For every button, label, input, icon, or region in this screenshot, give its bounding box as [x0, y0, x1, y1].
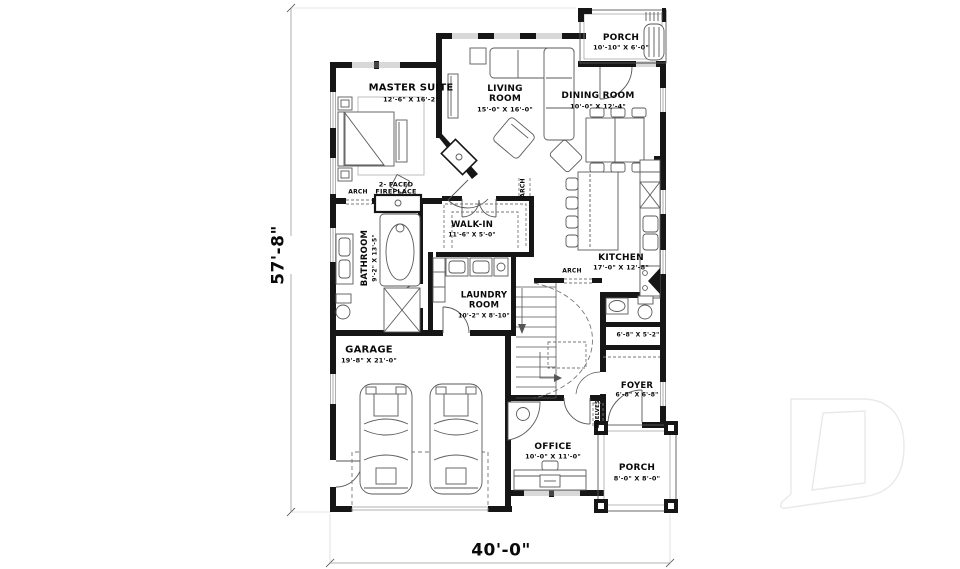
walk-in-label: WALK-IN	[451, 221, 493, 231]
arch-note-kitchen: ARCH	[562, 269, 582, 276]
laundry-room-label: LAUNDRY ROOM	[455, 291, 513, 310]
powder-room-dims: 6'-8" X 5'-2"	[616, 333, 659, 340]
foyer-dims: 6'-8" X 6'-8"	[615, 393, 658, 400]
laundry-room-dims: 10'-2" X 8'-10"	[458, 314, 510, 321]
grill-icon	[644, 12, 664, 60]
arch-note-hall: ARCH	[521, 178, 528, 198]
office-label: OFFICE	[534, 442, 571, 452]
stairs	[516, 283, 562, 398]
floor-plan-drawing	[0, 0, 960, 569]
living-room-label: LIVING ROOM	[482, 84, 528, 104]
dining-room-dims: 10'-0" X 12'-4"	[570, 103, 626, 110]
arch-note-master: ARCH	[348, 190, 368, 197]
fireplace-note: 2- FACED FIREPLACE	[372, 182, 420, 197]
floor-plan-page: MASTER SUITE 12'-6" X 16'-2" LIVING ROOM…	[0, 0, 960, 569]
shelves-note: SHELVES	[595, 400, 601, 428]
rear-porch-label: PORCH	[603, 33, 639, 43]
master-suite-label: MASTER SUITE	[369, 82, 454, 93]
living-room-dims: 15'-0" X 16'-0"	[477, 106, 533, 113]
rear-porch-dims: 10'-10" X 6'-0"	[593, 44, 649, 51]
walk-in-dims: 11'-6" X 5'-0"	[448, 233, 495, 240]
drummond-logo-watermark	[781, 399, 904, 508]
overall-width-dimension: 40'-0"	[471, 541, 531, 560]
front-porch-dims: 8'-0" X 8'-0"	[614, 475, 660, 482]
kitchen-dims: 17'-0" X 12'-8"	[593, 264, 649, 271]
master-suite-dims: 12'-6" X 16'-2"	[383, 96, 439, 103]
garage-label: GARAGE	[345, 344, 393, 355]
garage-cars	[360, 384, 482, 494]
kitchen-label: KITCHEN	[598, 253, 644, 263]
bathroom-dims: 9'-2" X 13'-5"	[373, 234, 380, 281]
dining-room-label: DINING ROOM	[561, 91, 634, 101]
garage-dims: 19'-8" X 21'-0"	[341, 357, 397, 364]
bathroom-label: BATHROOM	[361, 230, 371, 286]
foyer-label: FOYER	[621, 382, 653, 392]
overall-height-dimension: 57'-8"	[269, 225, 288, 285]
front-porch-label: PORCH	[619, 463, 655, 473]
office-dims: 10'-0" X 11'-0"	[525, 453, 581, 460]
